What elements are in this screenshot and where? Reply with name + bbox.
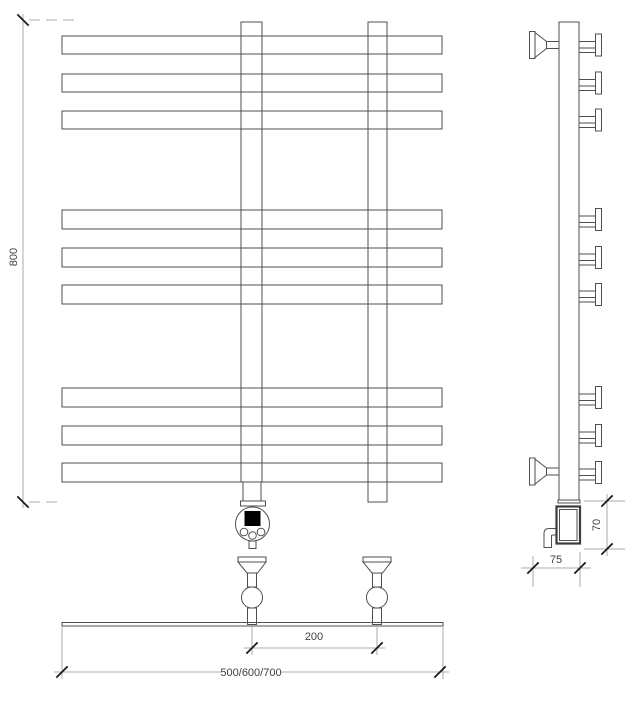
bar-end-cap <box>596 34 602 56</box>
technical-drawing: 800 200 500/600/700 70 <box>0 0 632 700</box>
control-display <box>245 511 261 526</box>
side-collector-tube <box>559 22 579 500</box>
valve-ball <box>367 587 388 608</box>
valve-stem <box>248 573 257 587</box>
bar-end-stem <box>579 291 596 298</box>
bracket-wall-plate <box>530 458 536 485</box>
valve-right <box>363 557 391 625</box>
heating-element-front <box>236 482 270 549</box>
drawing-canvas: 800 200 500/600/700 70 <box>0 0 632 700</box>
bracket-cone <box>535 33 547 58</box>
bar-end-cap <box>596 209 602 231</box>
valve-left <box>238 557 266 625</box>
dim-label-width-options: 500/600/700 <box>220 667 281 679</box>
bar-end-stem <box>579 216 596 223</box>
towel-bar <box>62 248 442 267</box>
towel-bar <box>62 36 442 54</box>
dim-valve-spacing: 200 <box>244 627 385 655</box>
control-button <box>249 532 257 540</box>
wall-bracket-bottom <box>530 458 560 485</box>
bar-end-stem <box>579 469 596 476</box>
bracket-wall-plate <box>530 32 536 59</box>
side-collector-cap <box>558 500 580 503</box>
bracket-stem <box>547 42 560 49</box>
dim-label-wall-depth: 75 <box>550 554 562 566</box>
control-stub <box>249 541 256 549</box>
bar-end-cap <box>596 109 602 131</box>
valve-ball <box>242 587 263 608</box>
front-view <box>62 22 443 626</box>
bar-end-cap <box>596 72 602 94</box>
dim-label-valve-spacing: 200 <box>305 631 323 643</box>
element-flange <box>241 501 266 506</box>
valve-cap <box>238 557 266 562</box>
bar-end-cap <box>596 387 602 409</box>
towel-bar <box>62 111 442 129</box>
bar-end-cap <box>596 247 602 269</box>
bar-end-stem <box>579 80 596 87</box>
towel-bar <box>62 463 442 482</box>
valve-cone <box>238 562 266 573</box>
bar-end-cap <box>596 425 602 447</box>
bar-end-stem <box>579 117 596 124</box>
element-neck <box>243 482 261 501</box>
valve-stem <box>373 573 382 587</box>
heating-element-side <box>544 507 580 548</box>
dim-label-height: 800 <box>8 248 20 266</box>
bar-end-cap <box>596 462 602 484</box>
bracket-stem <box>547 468 560 475</box>
bar-end-stem <box>579 394 596 401</box>
towel-bar <box>62 210 442 229</box>
bracket-cone <box>535 459 547 484</box>
dim-wall-depth: 75 <box>521 552 591 587</box>
towel-bar <box>62 285 442 304</box>
towel-bar <box>62 388 442 407</box>
bar-end-stem <box>579 42 596 49</box>
valve-cap <box>363 557 391 562</box>
control-button <box>257 528 265 536</box>
bar-end-stem <box>579 254 596 261</box>
bar-end-cap <box>596 284 602 306</box>
side-view <box>530 22 602 548</box>
element-box <box>557 507 581 544</box>
towel-bar <box>62 74 442 92</box>
wall-bracket-top <box>530 32 560 59</box>
dim-heater-height: 70 <box>584 494 625 556</box>
power-cable <box>544 529 557 548</box>
towel-bar <box>62 426 442 445</box>
control-button <box>240 528 248 536</box>
bar-end-stem <box>579 432 596 439</box>
dim-label-heater-height: 70 <box>591 519 603 531</box>
valve-cone <box>363 562 391 573</box>
bar-end-stubs <box>579 34 602 484</box>
